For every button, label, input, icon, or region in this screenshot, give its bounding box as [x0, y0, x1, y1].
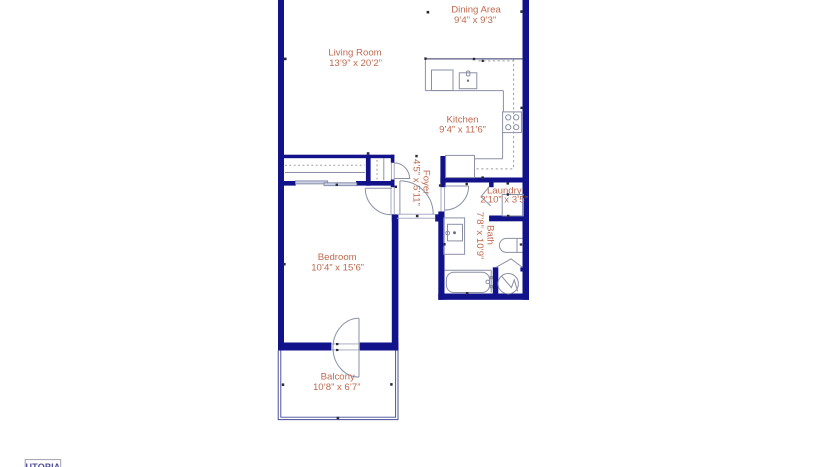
svg-text:7’8” x 10’9”: 7’8” x 10’9” — [474, 212, 485, 259]
svg-text:Bath: Bath — [484, 225, 495, 245]
svg-text:9’4” x 11’6”: 9’4” x 11’6” — [439, 124, 486, 135]
svg-text:10’4” x 15’6”: 10’4” x 15’6” — [311, 262, 364, 273]
svg-text:Living Room: Living Room — [328, 47, 381, 58]
svg-text:Dining Area: Dining Area — [451, 4, 501, 15]
svg-text:Bedroom: Bedroom — [318, 252, 357, 263]
svg-text:10’8” x 6’7”: 10’8” x 6’7” — [313, 382, 360, 393]
svg-text:9’4” x 9’3”: 9’4” x 9’3” — [454, 15, 496, 26]
svg-text:13’9” x 20’2”: 13’9” x 20’2” — [329, 58, 382, 69]
svg-text:4’5” x 5’11”: 4’5” x 5’11” — [411, 159, 422, 206]
svg-text:2’10” x 3’5”: 2’10” x 3’5” — [480, 195, 527, 206]
svg-text:UTOPIA: UTOPIA — [25, 462, 60, 467]
